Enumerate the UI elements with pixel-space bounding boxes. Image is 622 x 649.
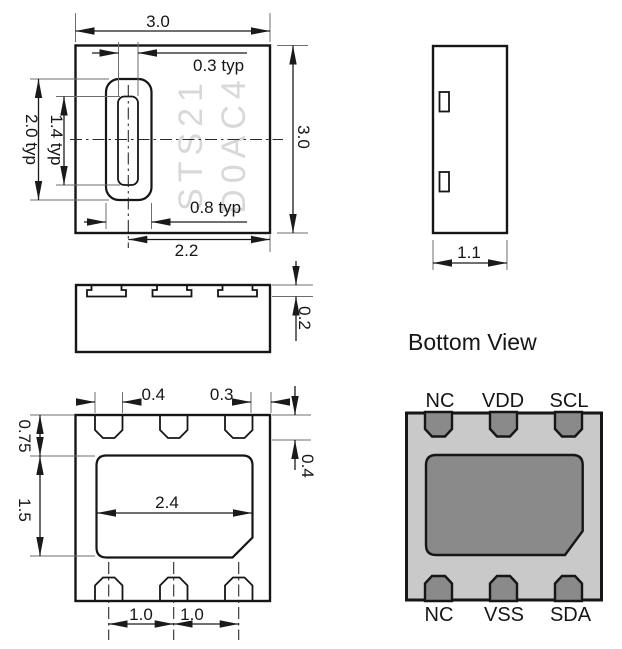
bottom-view-top-pad-1: [95, 416, 123, 438]
dim-die-pad-width: 2.4: [97, 493, 252, 513]
dim-pad-depth-label: 0.4: [298, 454, 317, 478]
pin-label-vdd: VDD: [482, 390, 524, 412]
dim-pad-depth: 0.4: [272, 386, 317, 478]
pin-label-nc-bottom: NC: [425, 604, 454, 626]
dim-pad-width: 0.4: [77, 385, 165, 413]
pinout-pad-sda: [555, 576, 582, 601]
pinout-pad-nc-top: [425, 412, 452, 437]
dim-die-pad-offset-label: 0.75: [15, 419, 34, 452]
side-pad-2: [440, 172, 450, 192]
pad-profile-3: [218, 286, 257, 297]
dim-overall-width-label: 3.0: [146, 12, 170, 31]
dim-slot-outer-width: 0.8 typ: [84, 198, 247, 229]
dim-pad-width-label: 0.4: [142, 385, 166, 404]
bottom-view-top-pad-2: [160, 416, 188, 438]
front-view: 0.2: [76, 261, 314, 352]
top-view: STS21 D0AC4 3.0 3.0 0.3 typ: [22, 12, 313, 260]
dim-die-pad-height: 1.5: [15, 456, 95, 556]
pinout-die-pad: [426, 455, 583, 555]
dim-pad-pitch-right-label: 1.0: [180, 605, 204, 624]
dim-slot-inner-height: 1.4 typ: [47, 97, 120, 186]
pad-profile-2: [153, 286, 192, 297]
dim-pad-thickness: 0.2: [272, 261, 314, 341]
pin-label-scl: SCL: [550, 390, 589, 412]
dim-overall-width: 3.0: [76, 12, 271, 42]
dim-pad-to-edge: 0.3: [210, 385, 288, 413]
bottom-dim-view: 0.4 0.3 0.4 0.75 1.5: [15, 385, 317, 640]
drawing-canvas: STS21 D0AC4 3.0 3.0 0.3 typ: [0, 0, 622, 649]
dim-pad-to-edge-label: 0.3: [210, 385, 234, 404]
chip-marking-line1: STS21: [172, 77, 210, 211]
dim-slot-center-to-edge: 2.2: [128, 235, 270, 260]
pin-label-nc-top: NC: [426, 390, 455, 412]
dim-slot-inner-height-label: 1.4 typ: [47, 114, 66, 165]
bottom-view-top-pad-3: [225, 416, 253, 438]
side-view: 1.1: [433, 46, 507, 270]
pinout-pad-vss: [490, 576, 517, 601]
dim-die-pad-height-label: 1.5: [15, 498, 34, 522]
pin-label-sda: SDA: [550, 604, 592, 626]
side-pad-1: [440, 92, 450, 112]
dim-slot-outer-width-label: 0.8 typ: [190, 198, 241, 217]
chip-marking-line2: D0AC4: [215, 74, 253, 214]
pinout-pad-nc-bottom: [425, 576, 452, 601]
pinout-pad-scl: [555, 412, 582, 437]
dim-overall-height-label: 3.0: [294, 125, 313, 149]
pad-profile-1: [87, 286, 126, 297]
package-outline-front: [76, 285, 270, 352]
dim-depth-label: 1.1: [457, 243, 481, 262]
dim-slot-inner-width-label: 0.3 typ: [193, 56, 244, 75]
package-outline-side: [433, 46, 507, 233]
package-outline-drawing: STS21 D0AC4 3.0 3.0 0.3 typ: [0, 0, 622, 649]
dim-die-pad-width-label: 2.4: [155, 493, 179, 512]
dim-slot-outer-height-label: 2.0 typ: [22, 114, 41, 165]
dim-pad-thickness-label: 0.2: [295, 306, 314, 330]
dim-die-pad-offset: 0.75: [15, 415, 95, 456]
pin-label-vss: VSS: [484, 604, 524, 626]
dim-slot-center-to-edge-label: 2.2: [175, 241, 199, 260]
dim-depth: 1.1: [433, 240, 507, 270]
pinout-view: Bottom View NC VDD SCL NC VSS SDA: [407, 329, 602, 626]
pinout-pad-vdd: [490, 412, 517, 437]
pinout-title: Bottom View: [408, 329, 537, 355]
dim-pad-pitch-left-label: 1.0: [129, 605, 153, 624]
